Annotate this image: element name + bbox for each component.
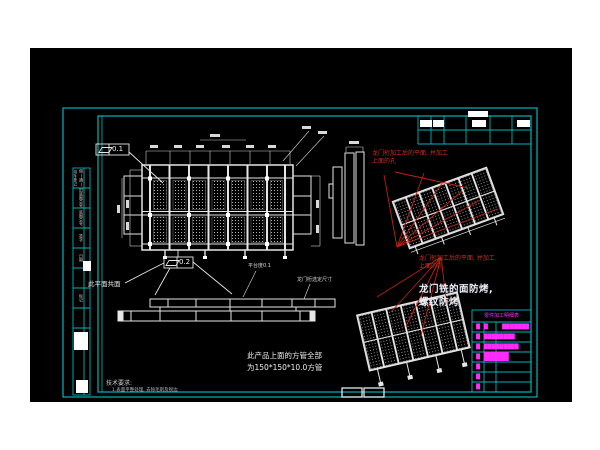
note-gantry-dimension: 龙门桁选定尺寸 — [297, 276, 332, 283]
cad-viewport: { "colors": { "canvas": "#000000", "page… — [0, 0, 600, 450]
machining-top-line1: 龙门桁加工后的平面, 并加工 — [372, 150, 448, 157]
milling-line2: 螺纹防烤 — [419, 297, 459, 308]
bom-row: ██████████ — [472, 342, 531, 352]
note-square-tube-line1: 此产品上面的方管全部 — [247, 351, 322, 360]
flatness-value-bottom: 0.2 — [179, 257, 190, 268]
bom-row: █ — [472, 372, 531, 382]
milling-line1: 龙门铣的面防烤, — [419, 284, 493, 295]
note-square-tube: 此产品上面的方管全部为150*150*10.0方管 — [247, 350, 322, 373]
machining-mid-line2: 上面的孔 — [419, 263, 443, 270]
note-machining-top: 龙门桁加工后的平面, 并加工上面的孔 — [372, 150, 448, 166]
tech-requirements-title: 技术要求: — [106, 378, 132, 387]
bom-row: █ — [472, 362, 531, 372]
note-platform-flatness: 平台度0.1 — [248, 262, 271, 269]
bom-row: █ — [472, 382, 531, 392]
frame-label-cell: 旧底图总号 — [74, 188, 84, 208]
note-coplanar: 此平面共面 — [88, 278, 121, 288]
frame-label-cell: 签字 — [74, 228, 84, 248]
note-milling: 龙门铣的面防烤,螺纹防烤 — [419, 284, 493, 309]
bom-table-header: 零件加工明细表 — [472, 310, 531, 322]
tech-requirements-item1: 1.表面平整处理, 去除毛刺及锐边 — [112, 387, 178, 393]
frame-label-cell: 借(通)用件登记 — [74, 168, 84, 188]
frame-label-cell: 标记 — [74, 288, 84, 308]
machining-top-line2: 上面的孔 — [372, 158, 396, 165]
note-square-tube-line2: 为150*150*10.0方管 — [247, 363, 322, 372]
machining-mid-line1: 龙门桁加工后的平面, 并加工 — [419, 255, 495, 262]
frame-label-cell: 日期 — [74, 248, 84, 268]
bom-row: █████████ — [472, 322, 531, 332]
flatness-value-top: 0.1 — [112, 144, 123, 155]
bom-row: █████████ — [472, 332, 531, 342]
frame-label-cell: 底图总号 — [74, 208, 84, 228]
bom-row: █████ — [472, 352, 531, 362]
note-machining-mid: 龙门桁加工后的平面, 并加工上面的孔 — [419, 255, 495, 271]
